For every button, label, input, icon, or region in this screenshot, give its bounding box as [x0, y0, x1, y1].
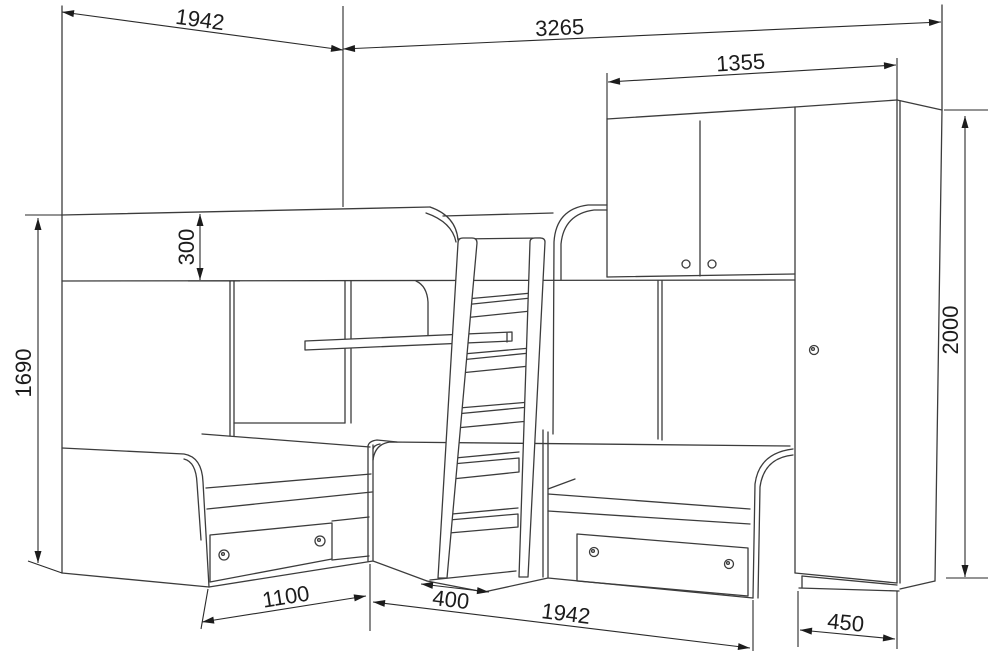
dim-total-width: 3265 [343, 14, 941, 49]
cabinet-knob-right [708, 260, 716, 268]
drawing-canvas: 1942 3265 1355 2000 1690 300 [0, 0, 997, 660]
under-bunk-shelf [305, 332, 512, 350]
dim-label: 3265 [535, 14, 585, 41]
left-headboard [62, 448, 209, 587]
ladder-step [452, 458, 519, 479]
dim-label: 450 [826, 608, 865, 636]
dim-cabinet-wardrobe-width: 1355 [607, 49, 897, 119]
left-bed [62, 440, 397, 587]
wardrobe [795, 5, 942, 591]
dim-label: 1942 [174, 4, 226, 35]
dim-wardrobe-width: 450 [798, 591, 897, 649]
dim-label: 300 [174, 229, 199, 266]
ladder-step [460, 353, 530, 373]
dim-label: 1942 [540, 598, 592, 629]
cabinet-knob-left [682, 260, 690, 268]
dim-right-bed-length: 1942 [373, 598, 753, 651]
dim-label: 1100 [261, 581, 312, 613]
dim-bed-back-height: 1690 [11, 215, 62, 573]
upper-bunk-left [62, 6, 795, 573]
wall-cabinet [607, 107, 795, 277]
ladder-step [456, 407, 529, 428]
technical-drawing: 1942 3265 1355 2000 1690 300 [0, 0, 997, 660]
dim-label: 1690 [11, 349, 36, 398]
bunk-cutout-curve [416, 281, 428, 339]
dim-label: 2000 [938, 306, 963, 355]
dim-guard-rail-height: 300 [174, 214, 240, 281]
ladder [438, 238, 545, 578]
right-bed [373, 430, 793, 598]
right-bed-backrest [373, 442, 790, 460]
cabinet-top [607, 107, 795, 119]
ladder-step [449, 514, 518, 533]
dim-wardrobe-height: 2000 [938, 110, 988, 578]
dim-top-left-width: 1942 [62, 4, 343, 207]
ladder-step [463, 298, 531, 318]
right-bed-drawer [577, 534, 748, 596]
wardrobe-top [795, 100, 897, 107]
dim-label: 1355 [715, 49, 765, 77]
